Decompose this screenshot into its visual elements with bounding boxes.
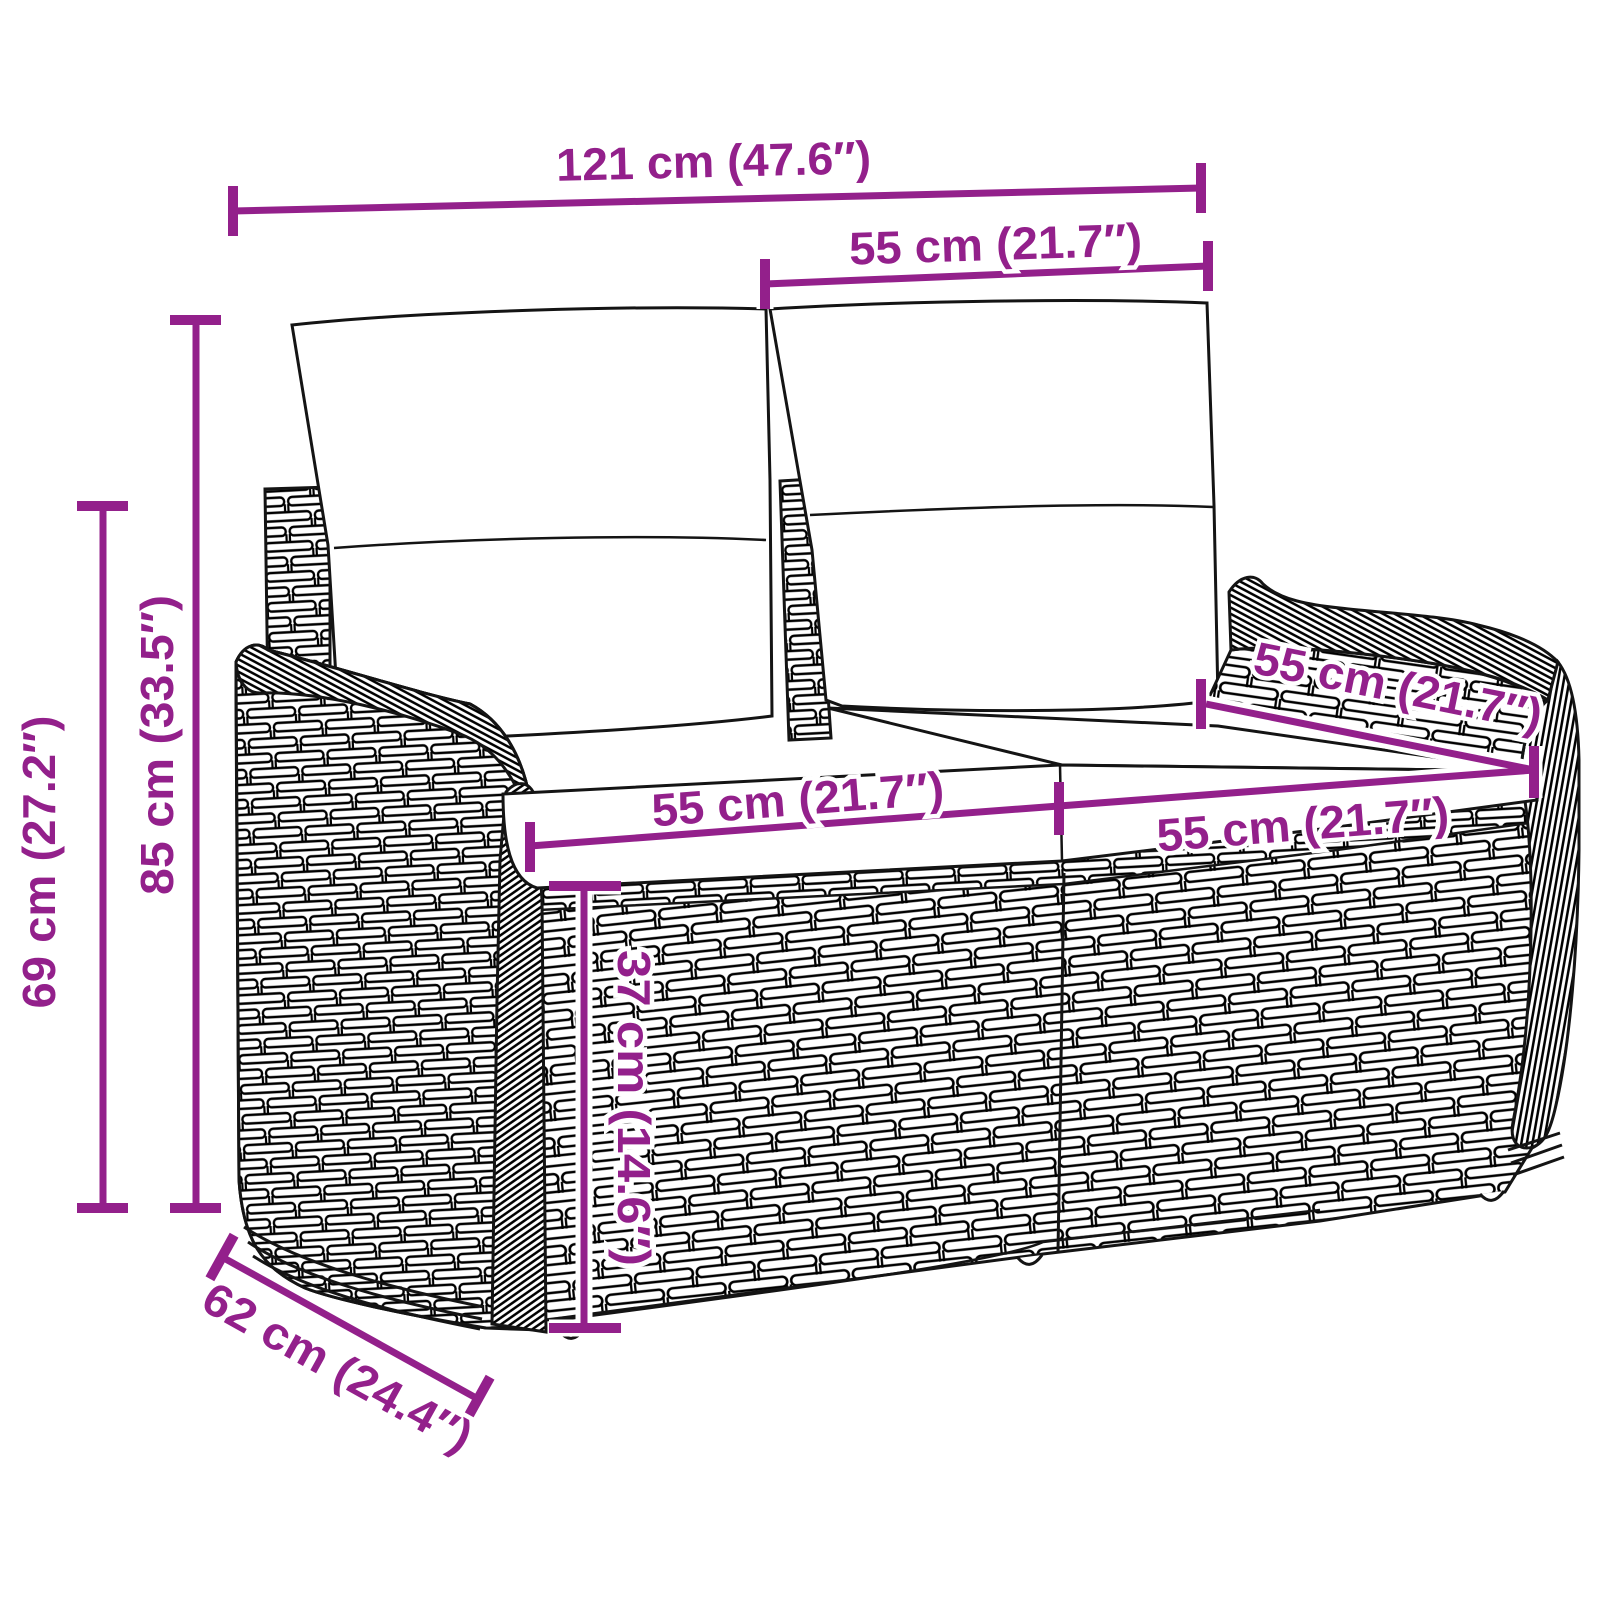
svg-text:69 cm (27.2″): 69 cm (27.2″) [13, 716, 65, 1009]
svg-text:37 cm (14.6″): 37 cm (14.6″) [608, 950, 660, 1266]
svg-text:85 cm (33.5″): 85 cm (33.5″) [131, 595, 183, 895]
svg-text:55 cm (21.7″): 55 cm (21.7″) [848, 213, 1142, 274]
svg-text:121 cm (47.6″): 121 cm (47.6″) [556, 131, 872, 191]
